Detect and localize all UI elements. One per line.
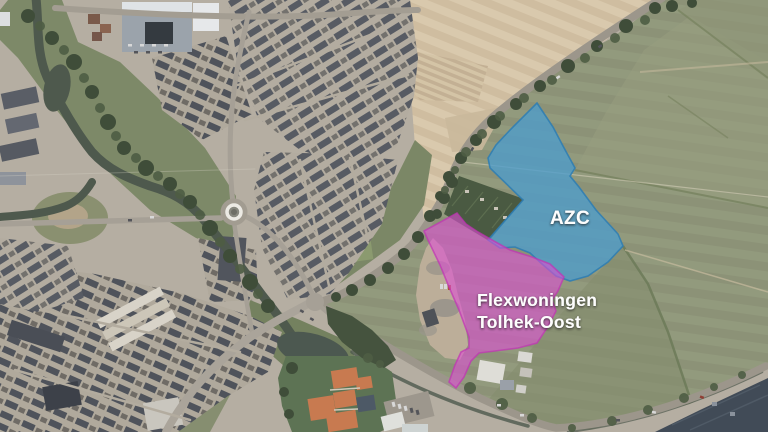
satellite-image: AZC Flexwoningen Tolhek-Oost: [0, 0, 768, 432]
flexwoningen-label-line1: Flexwoningen: [477, 290, 597, 310]
flexwoningen-label-line2: Tolhek-Oost: [477, 312, 581, 332]
clubhouse: [356, 395, 376, 413]
azc-zone-label: AZC: [550, 208, 590, 229]
roundabout: [221, 199, 248, 226]
aerial-map: AZC Flexwoningen Tolhek-Oost: [0, 0, 768, 432]
crossroad: [306, 293, 324, 311]
